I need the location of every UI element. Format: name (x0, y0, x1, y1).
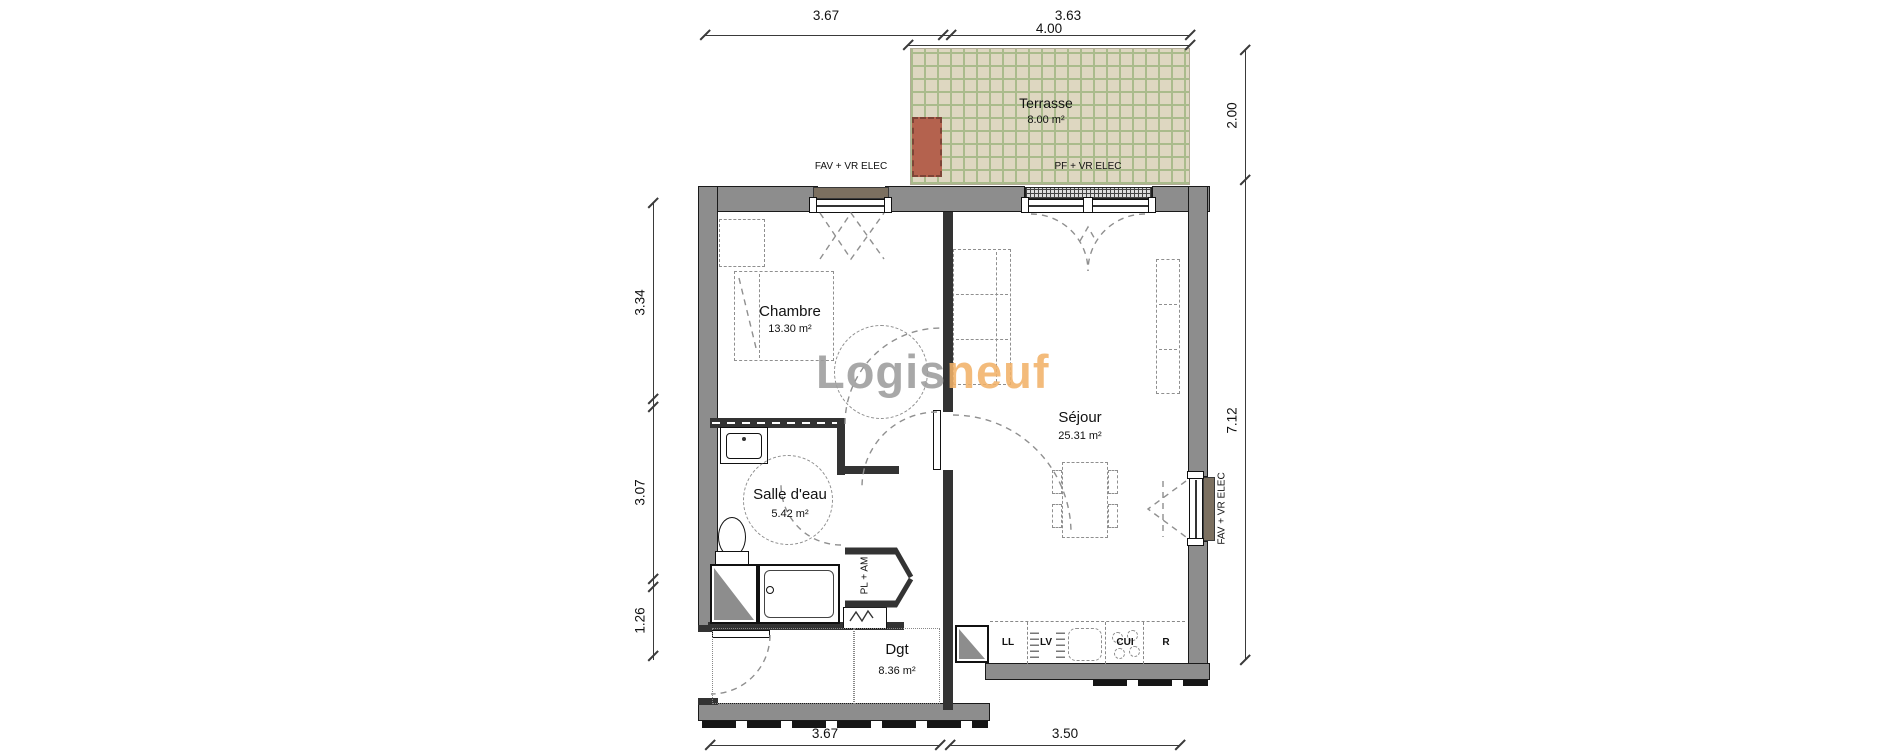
room-area-dgt: 8.36 m² (837, 665, 957, 677)
annotation-closet: PL + AM (860, 546, 871, 606)
dimension-left-lower: 1.26 (633, 591, 648, 651)
annotation-fav-top: FAV + VR ELEC (791, 161, 911, 172)
room-area-sejour: 25.31 m² (1020, 430, 1140, 442)
room-label-sejour: Séjour (1020, 409, 1140, 426)
annotation-fav-right: FAV + VR ELEC (1217, 451, 1228, 567)
room-area-chambre: 13.30 m² (735, 323, 845, 335)
dimension-line (908, 45, 1190, 46)
casement-swing-lines (820, 213, 884, 259)
french-door-swing-arc (1031, 214, 1088, 271)
closet-angled-wall (895, 549, 911, 577)
dimension-line (705, 35, 947, 36)
room-label-salle-eau: Salle d'eau (730, 486, 850, 503)
room-area-salle-eau: 5.42 m² (732, 508, 848, 520)
dimension-left-upper: 3.34 (633, 273, 648, 333)
watermark-part2: neuf (946, 345, 1049, 398)
dimension-right-upper: 2.00 (1225, 86, 1240, 146)
room-label-chambre: Chambre (730, 303, 850, 320)
dimension-bottom-left: 3.67 (795, 726, 855, 741)
sejour-door-swing-arc (862, 412, 937, 487)
floor-plan: Terrasse 8.00 m² (0, 0, 1900, 754)
closet-angled-wall (895, 579, 911, 606)
french-door-center-mark (1080, 227, 1096, 241)
watermark-logo: Logisneuf (816, 344, 1050, 399)
side-window-casement-lines (1148, 481, 1186, 537)
dimension-right-lower: 7.12 (1225, 391, 1240, 451)
dimension-line (1245, 50, 1246, 183)
french-door-swing-arc (1088, 214, 1145, 271)
annotation-pf-top: PF + VR ELEC (1028, 161, 1148, 172)
dimension-left-middle: 3.07 (633, 463, 648, 523)
dimension-terrace: 4.00 (1019, 21, 1079, 36)
casement-swing-lines (820, 213, 884, 259)
water-heater-zigzag-icon (850, 611, 873, 621)
dimension-line (653, 203, 654, 660)
dimension-top-left: 3.67 (796, 8, 856, 23)
entry-door-swing-arc (711, 635, 770, 694)
room-label-dgt: Dgt (837, 641, 957, 658)
watermark-part1: Logis (816, 345, 946, 398)
dimension-bottom-right: 3.50 (1035, 726, 1095, 741)
dimension-line (950, 745, 1180, 746)
dimension-line (1245, 183, 1246, 660)
dimension-line (710, 745, 940, 746)
